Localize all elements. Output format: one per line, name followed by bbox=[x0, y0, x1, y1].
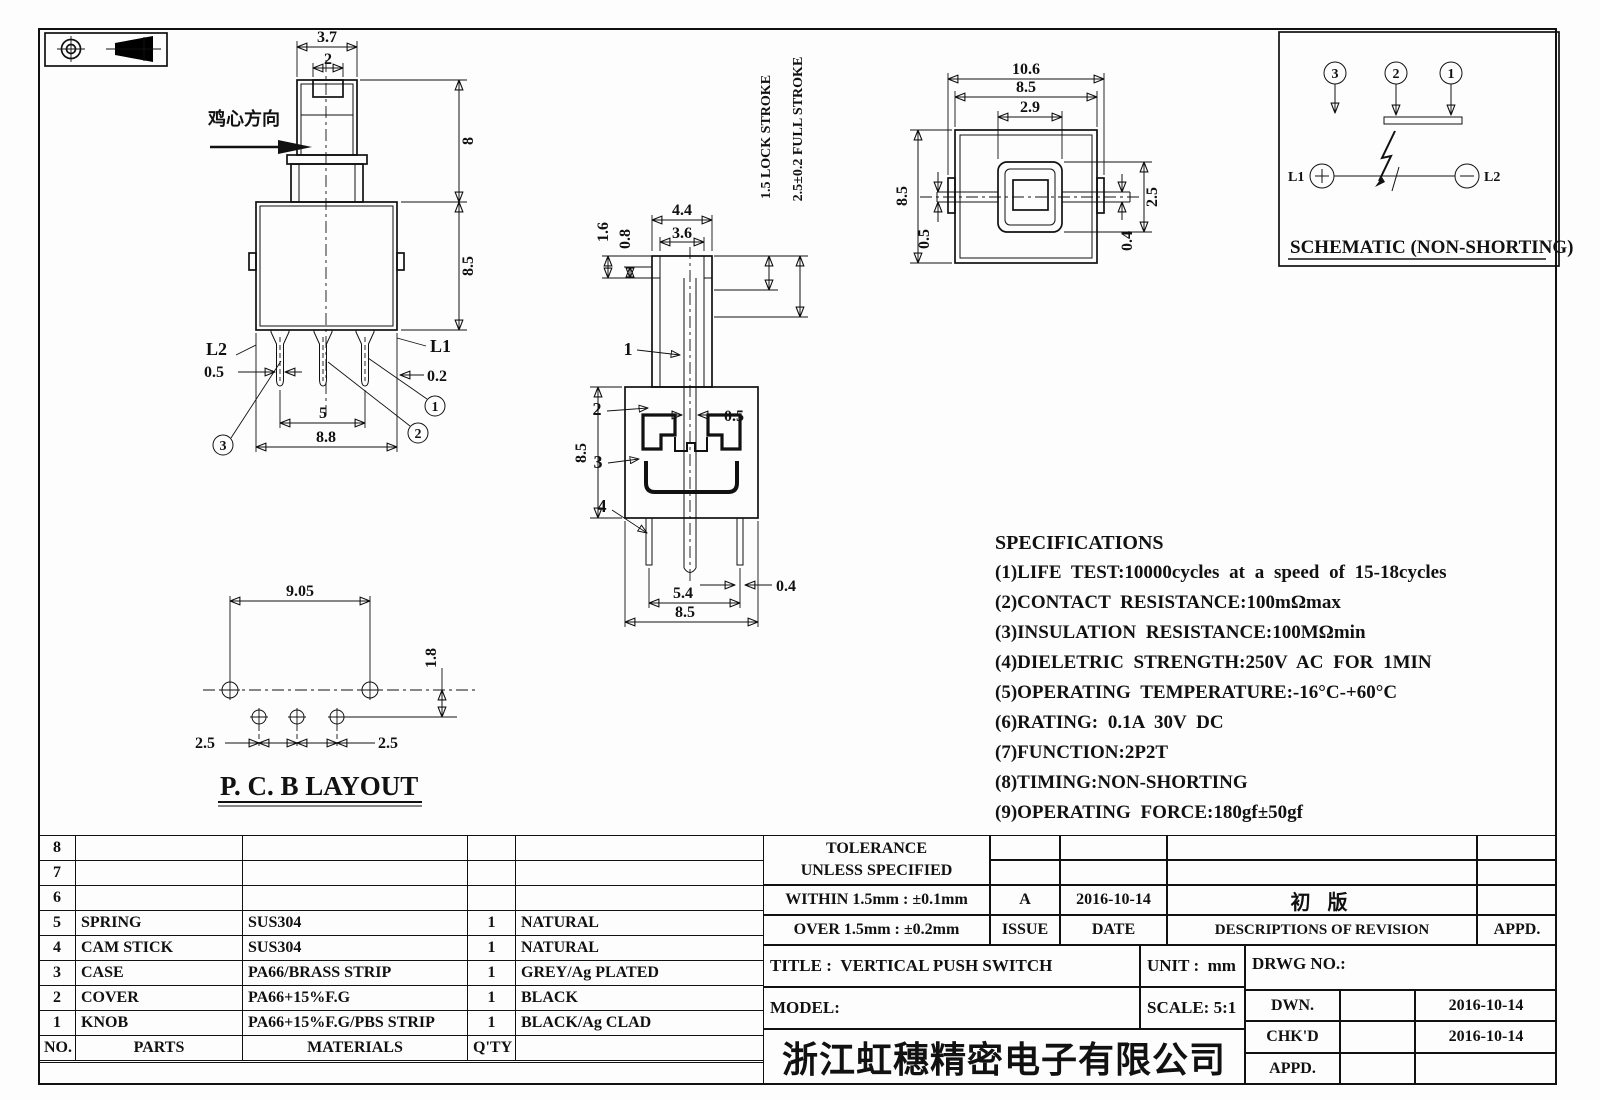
front-pins bbox=[271, 330, 374, 386]
part-material: PA66/BRASS STRIP bbox=[243, 961, 468, 986]
specifications-title: SPECIFICATIONS bbox=[995, 528, 1446, 558]
pin-callout-1: 1 bbox=[368, 358, 445, 416]
dim-step1: 1.6 bbox=[595, 222, 612, 242]
side-section-view: 4.4 3.6 1.6 0.8 1.5 LOCK STROKE 2.5±0.2 … bbox=[540, 25, 840, 640]
pcb-caption: P. C. B LAYOUT bbox=[220, 771, 418, 801]
dim-offset: 0.5 bbox=[916, 229, 933, 249]
part-qty bbox=[468, 886, 516, 911]
table-row: 6 bbox=[39, 886, 764, 911]
schematic-panel: 3 2 1 L1 L2 SCHEMATI bbox=[1278, 31, 1560, 268]
dim-body-height: 8.5 bbox=[460, 256, 477, 276]
revision-cell-empty bbox=[1477, 835, 1557, 860]
part-finish bbox=[516, 836, 764, 861]
dim-knob-height: 8 bbox=[460, 137, 477, 145]
label-l1-schematic: L1 bbox=[1288, 170, 1304, 185]
appd-date-cell bbox=[1415, 1053, 1557, 1085]
spec-item: (1)LIFE TEST:10000cycles at a speed of 1… bbox=[995, 558, 1446, 588]
part-name: CASE bbox=[76, 961, 243, 986]
part-qty bbox=[468, 836, 516, 861]
pcb-layout: 9.05 1.8 2.5 2.5 P. C. B bbox=[185, 580, 495, 815]
issue-label: ISSUE bbox=[990, 915, 1060, 945]
part-material: PA66+15%F.G bbox=[243, 986, 468, 1011]
tolerance-sub: UNLESS SPECIFIED bbox=[801, 860, 953, 882]
pcb-hole bbox=[220, 680, 240, 700]
appd-sign-cell bbox=[1340, 1053, 1415, 1085]
dim-span: 9.05 bbox=[286, 583, 314, 600]
dim-pitch-right: 2.5 bbox=[378, 735, 398, 752]
part-qty bbox=[468, 861, 516, 886]
table-row: 1KNOBPA66+15%F.G/PBS STRIP1BLACK/Ag CLAD bbox=[39, 1011, 764, 1036]
plus-terminal-icon bbox=[1310, 164, 1334, 188]
part-name: KNOB bbox=[76, 1011, 243, 1036]
direction-note: 鸡心方向 bbox=[207, 108, 280, 129]
part-material: PA66+15%F.G/PBS STRIP bbox=[243, 1011, 468, 1036]
spec-item: (8)TIMING:NON-SHORTING bbox=[995, 768, 1446, 798]
part-name bbox=[76, 861, 243, 886]
ref-4: 4 bbox=[598, 496, 607, 516]
dim-body-width-side: 8.5 bbox=[675, 604, 695, 621]
tolerance-header: TOLERANCE UNLESS SPECIFIED bbox=[763, 835, 990, 885]
unit-label: UNIT : bbox=[1147, 956, 1199, 976]
part-finish: BLACK bbox=[516, 986, 764, 1011]
schematic-pin-2: 2 bbox=[1385, 62, 1407, 115]
table-row: 7 bbox=[39, 861, 764, 886]
schematic-caption: SCHEMATIC (NON-SHORTING) bbox=[1290, 237, 1573, 258]
part-material bbox=[243, 836, 468, 861]
part-qty: 1 bbox=[468, 936, 516, 961]
dim-overall: 10.6 bbox=[1012, 61, 1040, 78]
revision-cell-empty bbox=[1477, 860, 1557, 885]
part-name: SPRING bbox=[76, 911, 243, 936]
revision-cell-empty bbox=[1167, 835, 1477, 860]
dim-shaft-width: 4.4 bbox=[672, 202, 692, 219]
tolerance-over: OVER 1.5mm : ±0.2mm bbox=[763, 915, 990, 945]
label-l2-schematic: L2 bbox=[1484, 170, 1500, 185]
part-material: SUS304 bbox=[243, 911, 468, 936]
table-row: 3CASEPA66/BRASS STRIP1GREY/Ag PLATED bbox=[39, 961, 764, 986]
chkd-label: CHK'D bbox=[1245, 1021, 1340, 1053]
tolerance-title: TOLERANCE bbox=[826, 838, 927, 860]
dim-knob-width: 3.7 bbox=[317, 29, 337, 46]
dim-row: 1.8 bbox=[423, 648, 440, 668]
switch-bolt-icon bbox=[1375, 131, 1399, 191]
part-no: 1 bbox=[39, 1011, 76, 1036]
part-name bbox=[76, 886, 243, 911]
dim-strip: 0.4 bbox=[1119, 231, 1136, 251]
header-materials: MATERIALS bbox=[243, 1036, 468, 1062]
ref-1: 1 bbox=[624, 339, 633, 359]
pcb-hole bbox=[328, 708, 346, 726]
dim-knob-top: 2.9 bbox=[1020, 99, 1040, 116]
part-name bbox=[76, 836, 243, 861]
dim-side-height: 8.5 bbox=[894, 186, 911, 206]
spec-item: (9)OPERATING FORCE:180gf±50gf bbox=[995, 798, 1446, 828]
unit-value: mm bbox=[1208, 956, 1236, 976]
svg-text:1: 1 bbox=[432, 400, 439, 415]
drwg-cell: DRWG NO.: bbox=[1245, 945, 1557, 990]
table-header-row: NO. PARTS MATERIALS Q'TY bbox=[39, 1036, 764, 1062]
note-lock-stroke: 1.5 LOCK STROKE bbox=[759, 75, 774, 199]
table-row: 2COVERPA66+15%F.G1BLACK bbox=[39, 986, 764, 1011]
pcb-hole bbox=[360, 680, 380, 700]
pcb-hole bbox=[288, 708, 306, 726]
part-finish: BLACK/Ag CLAD bbox=[516, 1011, 764, 1036]
chkd-date: 2016-10-14 bbox=[1415, 1021, 1557, 1053]
part-finish bbox=[516, 861, 764, 886]
revision-cell-empty bbox=[990, 860, 1060, 885]
spec-item: (7)FUNCTION:2P2T bbox=[995, 738, 1446, 768]
issue-value: A bbox=[990, 885, 1060, 915]
date-label: DATE bbox=[1060, 915, 1167, 945]
part-finish: NATURAL bbox=[516, 936, 764, 961]
revision-date: 2016-10-14 bbox=[1060, 885, 1167, 915]
part-material bbox=[243, 886, 468, 911]
model-cell: MODEL: bbox=[763, 987, 1140, 1029]
projection-symbol bbox=[40, 30, 175, 72]
title-row: TITLE : VERTICAL PUSH SWITCH bbox=[763, 945, 1140, 987]
dim-body-width: 8.8 bbox=[316, 429, 336, 446]
note-full-stroke: 2.5±0.2 FULL STROKE bbox=[791, 57, 806, 202]
svg-text:1: 1 bbox=[1448, 67, 1455, 82]
specifications: SPECIFICATIONS (1)LIFE TEST:10000cycles … bbox=[995, 528, 1446, 828]
title-label: TITLE : bbox=[770, 956, 832, 976]
drawing-title: VERTICAL PUSH SWITCH bbox=[840, 956, 1052, 976]
svg-text:2: 2 bbox=[1393, 67, 1400, 82]
direction-arrow-icon bbox=[278, 140, 312, 154]
header-qty: Q'TY bbox=[468, 1036, 516, 1062]
drawing-sheet: 3.7 2 8 8.5 L2 0.5 L1 0.2 1 2 bbox=[0, 0, 1600, 1100]
scale-cell: SCALE: 5:1 bbox=[1140, 987, 1245, 1029]
unit-cell: UNIT : mm bbox=[1140, 945, 1245, 987]
heart-cam-mechanism bbox=[643, 415, 740, 492]
part-no: 5 bbox=[39, 911, 76, 936]
dim-wall: 0.2 bbox=[427, 368, 447, 385]
revision-cell-empty bbox=[990, 835, 1060, 860]
dwn-date: 2016-10-14 bbox=[1415, 990, 1557, 1021]
svg-text:3: 3 bbox=[220, 439, 227, 454]
chkd-sign-cell bbox=[1340, 1021, 1415, 1053]
part-finish: GREY/Ag PLATED bbox=[516, 961, 764, 986]
dim-pin-width: 0.5 bbox=[204, 364, 224, 381]
appd-label: APPD. bbox=[1245, 1053, 1340, 1085]
dim-pin-span: 5 bbox=[319, 405, 327, 422]
dwn-sign-cell bbox=[1340, 990, 1415, 1021]
spec-item: (4)DIELETRIC STRENGTH:250V AC FOR 1MIN bbox=[995, 648, 1446, 678]
company-name: 浙江虹穗精密电子有限公司 bbox=[763, 1029, 1245, 1085]
table-row: 4CAM STICKSUS3041NATURAL bbox=[39, 936, 764, 961]
header-finish bbox=[516, 1036, 764, 1062]
dim-step2: 0.8 bbox=[617, 229, 634, 249]
projection-circle-icon bbox=[57, 36, 85, 62]
label-l1: L1 bbox=[430, 336, 451, 356]
spec-item: (2)CONTACT RESISTANCE:100mΩmax bbox=[995, 588, 1446, 618]
dim-pin-thickness: 0.4 bbox=[776, 578, 796, 595]
header-no: NO. bbox=[39, 1036, 76, 1062]
part-no: 4 bbox=[39, 936, 76, 961]
part-material: SUS304 bbox=[243, 936, 468, 961]
dim-pin-span-side: 5.4 bbox=[673, 585, 693, 602]
part-no: 7 bbox=[39, 861, 76, 886]
part-finish: NATURAL bbox=[516, 911, 764, 936]
parts-table: 8 7 6 5SPRINGSUS3041NATURAL 4CAM STICKSU… bbox=[38, 835, 764, 1063]
dim-shaft-inner: 3.6 bbox=[672, 225, 692, 242]
pin-callout-2: 2 bbox=[328, 362, 428, 443]
part-no: 6 bbox=[39, 886, 76, 911]
revision-title-block: TOLERANCE UNLESS SPECIFIED WITHIN 1.5mm … bbox=[763, 835, 1557, 1085]
part-qty: 1 bbox=[468, 961, 516, 986]
spec-item: (5)OPERATING TEMPERATURE:-16°C-+60°C bbox=[995, 678, 1446, 708]
dim-knob-slot: 2 bbox=[324, 51, 332, 68]
scale-label: SCALE: bbox=[1147, 998, 1209, 1018]
header-parts: PARTS bbox=[76, 1036, 243, 1062]
dim-body-top: 8.5 bbox=[1016, 79, 1036, 96]
spec-item: (6)RATING: 0.1A 30V DC bbox=[995, 708, 1446, 738]
desc-label: DESCRIPTIONS OF REVISION bbox=[1167, 915, 1477, 945]
dwn-label: DWN. bbox=[1245, 990, 1340, 1021]
pcb-hole bbox=[250, 708, 268, 726]
part-name: CAM STICK bbox=[76, 936, 243, 961]
spec-item: (3)INSULATION RESISTANCE:100MΩmin bbox=[995, 618, 1446, 648]
revision-cell-empty bbox=[1167, 860, 1477, 885]
revision-cell-empty bbox=[1477, 885, 1557, 915]
table-row: 5SPRINGSUS3041NATURAL bbox=[39, 911, 764, 936]
svg-text:2: 2 bbox=[415, 427, 422, 442]
schematic-pin-1: 1 bbox=[1440, 62, 1462, 115]
contact-bar bbox=[1384, 117, 1462, 124]
dim-body-height-side: 8.5 bbox=[573, 443, 590, 463]
part-material bbox=[243, 861, 468, 886]
revision-description: 初 版 bbox=[1167, 885, 1477, 915]
svg-text:3: 3 bbox=[1332, 67, 1339, 82]
part-qty: 1 bbox=[468, 986, 516, 1011]
model-label: MODEL: bbox=[770, 998, 840, 1018]
part-name: COVER bbox=[76, 986, 243, 1011]
part-finish bbox=[516, 886, 764, 911]
front-view: 3.7 2 8 8.5 L2 0.5 L1 0.2 1 2 bbox=[180, 25, 500, 470]
part-no: 3 bbox=[39, 961, 76, 986]
appd-col-label: APPD. bbox=[1477, 915, 1557, 945]
part-no: 8 bbox=[39, 836, 76, 861]
revision-cell-empty bbox=[1060, 860, 1167, 885]
minus-terminal-icon bbox=[1455, 164, 1479, 188]
table-row: 8 bbox=[39, 836, 764, 861]
revision-cell-empty bbox=[1060, 835, 1167, 860]
part-qty: 1 bbox=[468, 1011, 516, 1036]
tolerance-within: WITHIN 1.5mm : ±0.1mm bbox=[763, 885, 990, 915]
dim-pitch-left: 2.5 bbox=[195, 735, 215, 752]
projection-cone-icon bbox=[106, 36, 161, 62]
top-view: 10.6 8.5 2.9 8.5 0.5 2.5 0.4 bbox=[880, 55, 1180, 295]
label-l2: L2 bbox=[206, 339, 227, 359]
part-qty: 1 bbox=[468, 911, 516, 936]
dim-knob-height-top: 2.5 bbox=[1144, 187, 1161, 207]
schematic-pin-3: 3 bbox=[1324, 62, 1346, 113]
part-no: 2 bbox=[39, 986, 76, 1011]
ref-2: 2 bbox=[593, 399, 602, 419]
scale-value: 5:1 bbox=[1214, 998, 1237, 1018]
